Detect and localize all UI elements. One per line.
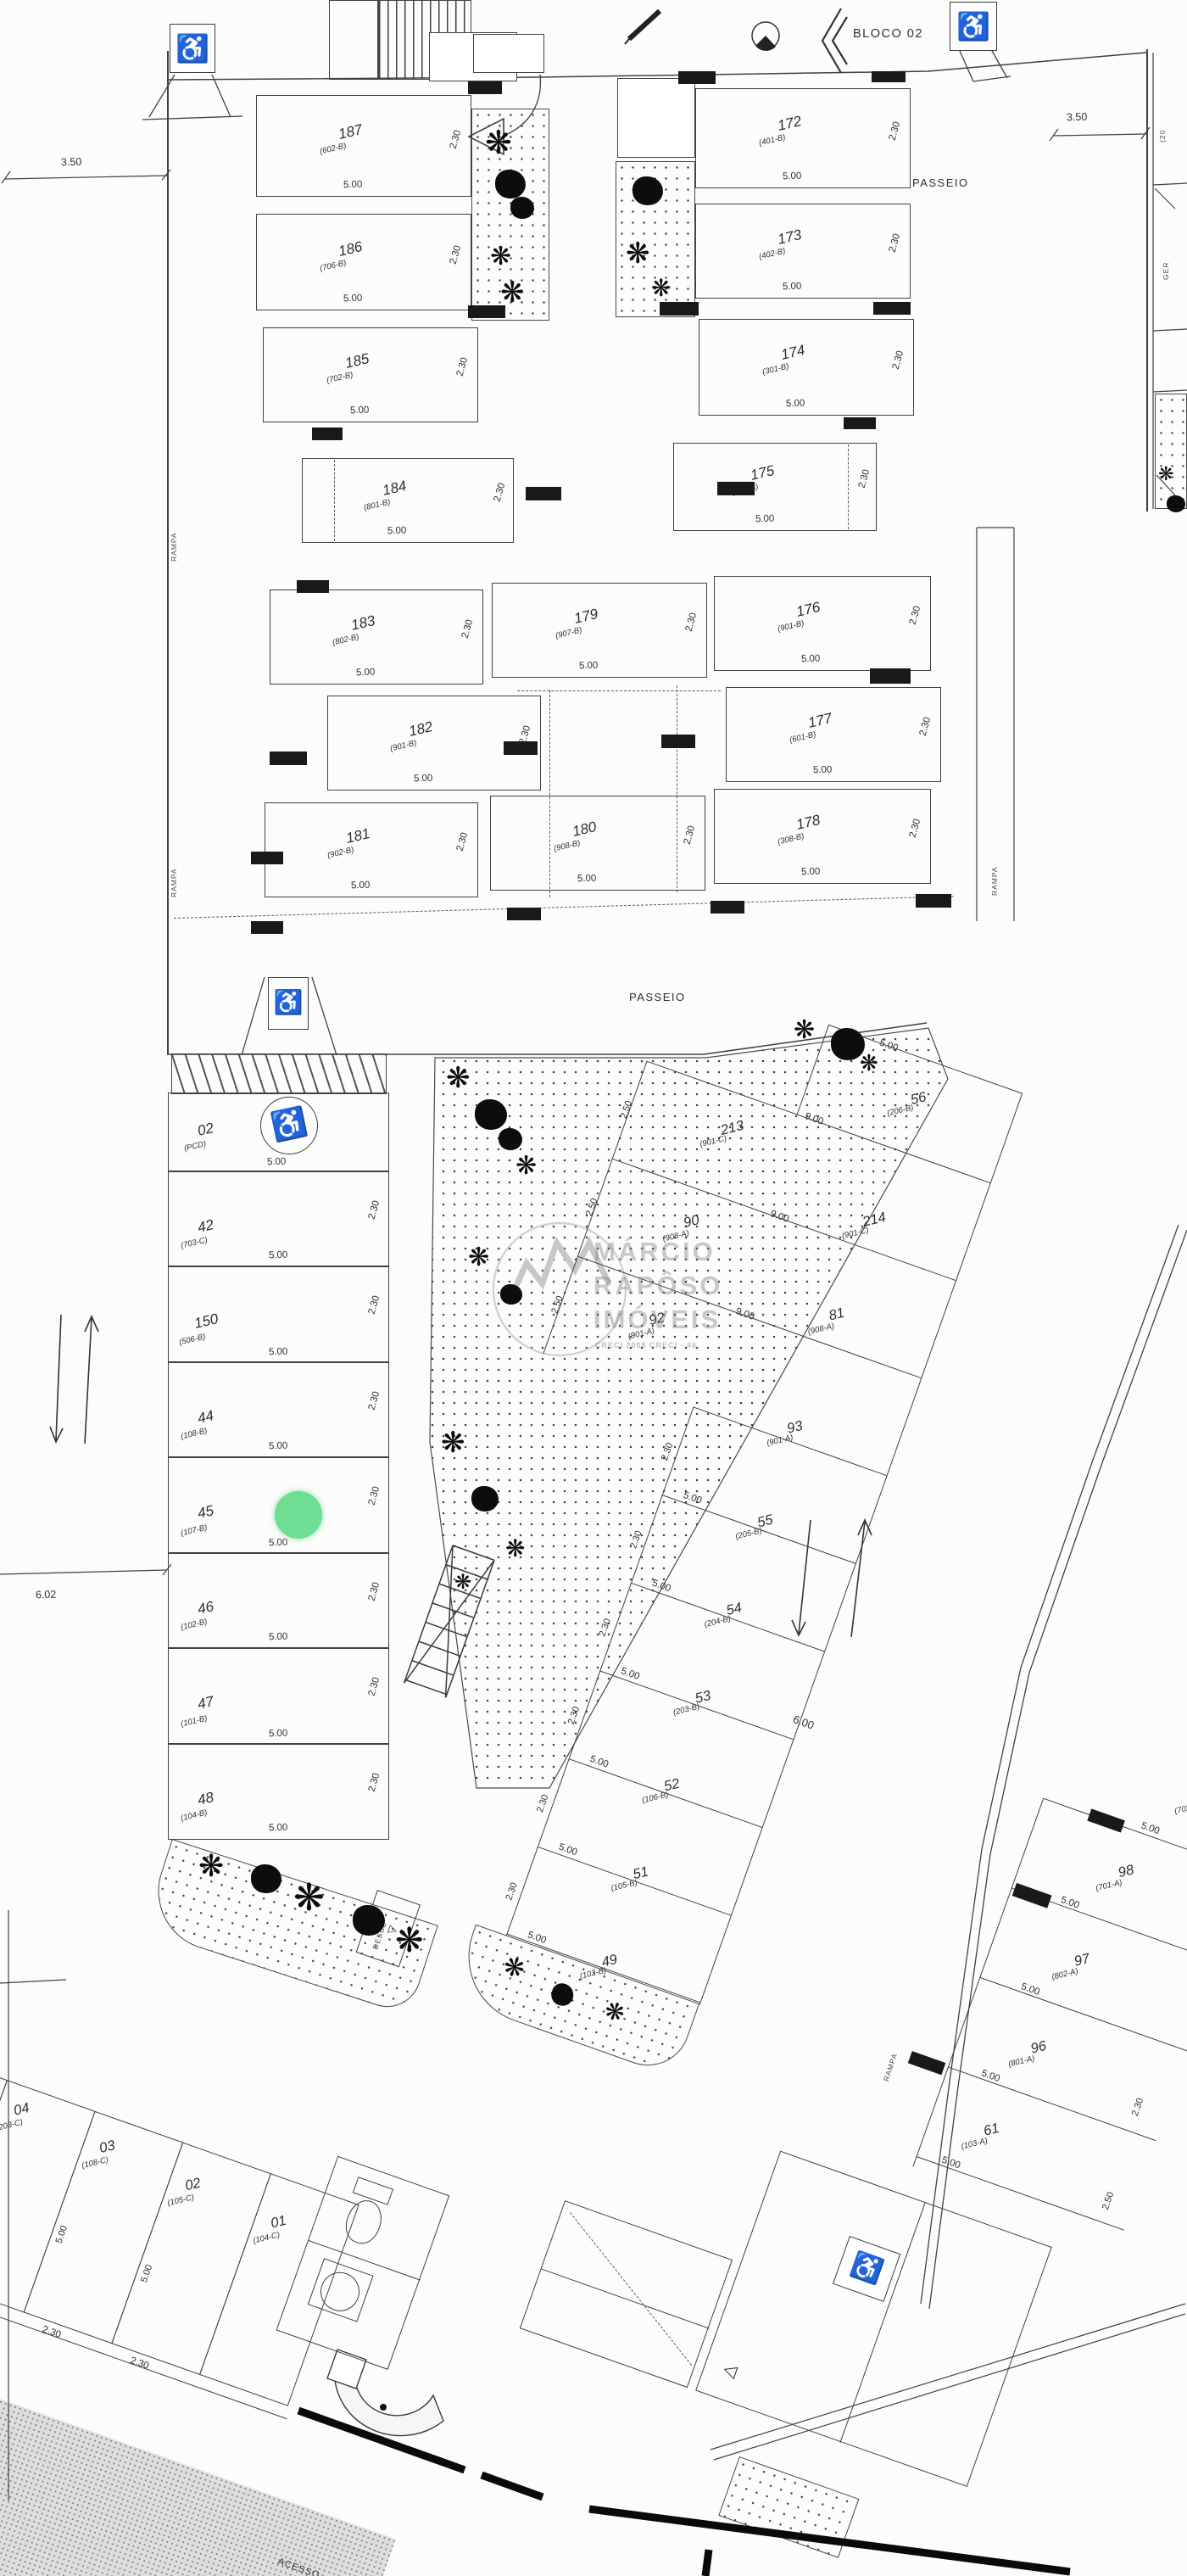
stall-code: (901-B) (389, 740, 417, 753)
dim-230: 2.30 (892, 349, 906, 371)
stall-code: (103-A) (961, 2137, 989, 2151)
stall-code: (301-B) (761, 363, 789, 377)
dim-500: 5.00 (813, 766, 833, 776)
stall-number: 184 (381, 478, 407, 498)
stall-185: 185 (702-B) 5.00 2.30 (263, 327, 478, 422)
dim-500: 5.00 (269, 1824, 288, 1834)
stall-number: 178 (794, 813, 821, 832)
stall-150: 150 (506-B) 5.00 2.30 (168, 1266, 389, 1363)
stall-code: (601-B) (789, 731, 816, 745)
stall-186: 186 (706-B) 5.00 2.30 (256, 214, 471, 310)
wheel-stop (717, 482, 755, 495)
dim-500: 5.00 (269, 1348, 288, 1358)
dim-500: 5.00 (387, 527, 407, 537)
stall-number: 47 (196, 1694, 215, 1712)
stall-number: 02 (196, 1120, 215, 1138)
plant-icon: ❋ (515, 1154, 537, 1179)
stall-pcd-02: 02 (PCD) 5.00 ♿ (168, 1092, 389, 1172)
dim-500: 5.00 (269, 1251, 288, 1261)
wheelchair-icon: ♿ (266, 1094, 313, 1154)
stall-code: (104-C) (253, 2231, 281, 2245)
site-plan: ♿ BLOCO 02 ♿ 3.50 3.50 RAMPA RAMPA RAMPA… (0, 0, 1187, 2576)
stall-code: (101-B) (180, 1715, 208, 1729)
dim-500: 5.00 (579, 662, 599, 672)
dim-230: 2.30 (368, 1772, 382, 1793)
dim-500: 5.00 (356, 668, 376, 679)
stair-shaft (329, 0, 378, 80)
dim-500: 5.00 (343, 181, 363, 191)
stall-code: (802-A) (1051, 1968, 1079, 1982)
stall-number: 81 (828, 1306, 846, 1323)
plant-icon: ❋ (446, 1064, 471, 1092)
dim-500: 5.00 (755, 515, 775, 525)
stall-number: 181 (344, 826, 371, 846)
stall-number: 176 (794, 600, 821, 619)
wheel-stop (504, 741, 538, 755)
stall-number: 44 (196, 1408, 215, 1426)
dim-230: 2.30 (909, 605, 923, 626)
dim-500: 5.00 (140, 2264, 155, 2284)
accessible-sign-mid: ♿ (268, 977, 309, 1030)
wheelchair-icon: ♿ (274, 989, 304, 1015)
passeio-label-right: PASSEIO (912, 176, 969, 189)
dim-230: 2.30 (461, 618, 476, 640)
stall-42: 42 (703-C) 5.00 2.30 (168, 1171, 389, 1267)
plant-icon: ❋ (1158, 465, 1173, 483)
stall-code: (901-C) (841, 1227, 870, 1241)
dim-230: 2.30 (660, 1442, 676, 1462)
plant-icon: ❋ (505, 1537, 525, 1561)
room-ger-label: GER (1162, 262, 1170, 280)
stall-code: (506-B) (178, 1333, 206, 1347)
shrub (1167, 495, 1185, 512)
dim-500: 5.00 (269, 1442, 288, 1452)
stall-code: (703-C) (180, 1236, 209, 1250)
dim-500: 5.00 (343, 294, 363, 305)
wheelchair-icon: ♿ (956, 11, 990, 42)
dim-230: 2.30 (598, 1618, 613, 1638)
shrub (251, 1864, 281, 1893)
stall-number: 180 (571, 819, 597, 839)
stall-number: 02 (184, 2176, 203, 2193)
wheel-stop (916, 894, 951, 908)
stall-code: (602-B) (319, 142, 347, 156)
plant-icon: ❋ (293, 1880, 325, 1917)
plant-icon: ❋ (485, 127, 512, 159)
stall-code: (401-B) (758, 134, 786, 148)
dim-500: 5.00 (55, 2225, 70, 2245)
dashed-line (334, 460, 335, 541)
wheelchair-icon: ♿ (176, 33, 209, 64)
plant-icon: ❋ (794, 1018, 815, 1043)
shrub (353, 1905, 385, 1936)
dim-230: 2.30 (368, 1390, 382, 1411)
dim-602: 6.02 (36, 1590, 57, 1601)
stall-code: (702- (1173, 1803, 1187, 1815)
dim-500: 5.00 (269, 1633, 288, 1643)
planter-box-b (617, 78, 695, 158)
wheel-stop (844, 417, 876, 429)
rampa-label-left-lower: RAMPA (170, 868, 178, 897)
stall-number: 179 (572, 606, 599, 626)
planter-box-a (473, 34, 544, 73)
stall-number: 186 (337, 239, 363, 259)
stall-number: 174 (779, 343, 805, 362)
stall-number: 03 (98, 2138, 117, 2155)
dim-230: 2.30 (449, 129, 464, 150)
watermark: MÁRCIO RAPÔSO IMÓVEIS CRECI 2008 CRECI -… (475, 1221, 780, 1383)
stall-code: (801-A) (1007, 2054, 1035, 2069)
plant-icon: ❋ (601, 1998, 627, 2026)
dim-500: 5.00 (414, 774, 433, 785)
stall-number: 183 (349, 613, 376, 633)
wheel-stop (661, 735, 695, 748)
plant-icon: ❋ (441, 1428, 465, 1457)
stall-code: (908-A) (807, 1322, 835, 1337)
dim-230: 2.30 (368, 1294, 382, 1316)
stall-187: 187 (602-B) 5.00 2.30 (256, 95, 471, 197)
stall-179: 179 (907-B) 5.00 2.30 (492, 583, 707, 678)
stall-code: (907-B) (554, 627, 582, 640)
stall-code: (802-B) (332, 634, 359, 647)
dim-350-left: 3.50 (61, 157, 82, 168)
stall-176: 176 (901-B) 5.00 2.30 (714, 576, 931, 671)
stall-code: (701-A) (1095, 1879, 1123, 1893)
accessible-sign-top-right: ♿ (950, 2, 997, 51)
dim-230: 2.30 (456, 356, 471, 377)
dim-350-right: 3.50 (1067, 112, 1088, 123)
stall-code: (902-B) (326, 847, 354, 860)
stall-173: 173 (402-B) 5.00 2.30 (695, 204, 911, 299)
dim-230: 2.30 (449, 244, 464, 265)
stall-number: 187 (337, 122, 363, 142)
highlight-marker[interactable] (275, 1491, 322, 1539)
stall-number: 173 (776, 227, 802, 247)
stall-number: 04 (13, 2101, 31, 2118)
stall-code: (901-B) (777, 620, 805, 634)
stall-code: (402-B) (758, 248, 786, 261)
dim-500: 5.00 (577, 874, 597, 885)
dim-500: 5.00 (801, 868, 821, 878)
stall-code: (901-C) (699, 1135, 728, 1149)
dim-230: 2.30 (567, 1706, 582, 1726)
stall-code: (203-C) (0, 2119, 24, 2133)
stall-code: (706-B) (319, 260, 347, 273)
wheel-stop (312, 427, 343, 440)
dim-500: 5.00 (786, 400, 805, 410)
stall-number: 172 (776, 114, 802, 133)
stall-175: 175 (502-B) 5.00 2.30 (673, 443, 877, 531)
room-partial-label: (20 (1158, 130, 1167, 142)
stall-172: 172 (401-B) 5.00 2.30 (695, 88, 911, 188)
watermark-line2: RAPÔSO (593, 1272, 722, 1299)
wheel-stop (870, 668, 911, 684)
stall-177: 177 (601-B) 5.00 2.30 (726, 687, 941, 782)
dim-230: 2.30 (456, 831, 471, 852)
door-swing-icon: ◁ (721, 2358, 740, 2383)
watermark-subtext: CRECI 2008 CRECI - 46 (595, 1342, 697, 1349)
dim-500: 5.00 (269, 1539, 288, 1549)
stall-number: 48 (196, 1790, 215, 1808)
plant-icon: ❋ (860, 1052, 878, 1074)
stall-number: 45 (196, 1503, 215, 1521)
stall-number: 42 (196, 1217, 215, 1235)
dim-230: 2.30 (536, 1793, 551, 1813)
dim-230: 2.30 (368, 1199, 382, 1221)
stall-code: (108-C) (81, 2156, 110, 2171)
stall-code: (105-C) (167, 2193, 196, 2208)
wheel-stop (660, 302, 699, 316)
dim-500: 5.00 (940, 2156, 961, 2171)
pcd-wheelchair-badge: ♿ (260, 1097, 318, 1154)
stall-46: 46 (102-B) 5.00 2.30 (168, 1552, 389, 1649)
dim-500: 5.00 (783, 172, 802, 182)
dim-230: 2.30 (368, 1485, 382, 1506)
dim-230: 2.30 (493, 482, 508, 503)
stall-code: (PCD) (183, 1140, 207, 1153)
stall-174: 174 (301-B) 5.00 2.30 (699, 319, 914, 416)
stall-number: 150 (192, 1311, 219, 1331)
dim-230: 2.30 (629, 1529, 644, 1550)
wheel-stop (526, 487, 561, 500)
toilet-bowl (341, 2195, 387, 2248)
toilet (353, 2176, 393, 2205)
dim-230: 2.30 (919, 716, 933, 737)
dim-500: 5.00 (783, 282, 802, 293)
shrub (499, 1128, 522, 1150)
plant-icon: ❋ (651, 277, 671, 300)
stall-47: 47 (101-B) 5.00 2.30 (168, 1647, 389, 1745)
wheel-stop (711, 901, 744, 914)
dim-230: 2.30 (1131, 2097, 1146, 2117)
dim-500: 5.00 (801, 655, 821, 665)
shrub (471, 1486, 499, 1512)
stall-code: (206-B) (886, 1104, 914, 1118)
shrub (510, 197, 534, 219)
dim-230: 2.30 (685, 612, 699, 633)
dim-230: 2.30 (504, 1881, 520, 1902)
dim-230: 2.30 (889, 232, 903, 254)
rampa-label-right: RAMPA (990, 866, 999, 896)
wheel-stop (297, 580, 329, 593)
stall-code: (801-B) (363, 499, 391, 512)
dim-500: 5.00 (351, 881, 371, 891)
wheel-stop (873, 302, 911, 315)
plant-icon: ❋ (490, 244, 511, 270)
accessible-sign-top-left: ♿ (170, 24, 215, 73)
stall-code: (308-B) (777, 833, 805, 847)
plant-icon: ❋ (395, 1924, 424, 1958)
wheel-stop (251, 921, 283, 934)
dim-500: 5.00 (350, 406, 370, 416)
dim-230: 2.30 (368, 1581, 382, 1602)
wheelchair-icon: ♿ (847, 2250, 886, 2288)
watermark-line1: MÁRCIO (593, 1238, 716, 1265)
left-wall (167, 51, 169, 1054)
stall-number: 175 (749, 463, 775, 483)
dim-230: 2.30 (858, 468, 872, 489)
stall-number: 182 (407, 719, 433, 739)
plant-icon: ❋ (499, 1953, 528, 1984)
plant-icon: ❋ (198, 1851, 224, 1881)
shrub (495, 170, 526, 198)
wheel-stop (270, 752, 307, 765)
stall-code: (702-B) (326, 372, 354, 385)
stall-code: (908-B) (553, 840, 581, 853)
stall-44: 44 (108-B) 5.00 2.30 (168, 1361, 389, 1458)
plant-icon: ❋ (626, 239, 650, 268)
dashed-line (517, 690, 721, 691)
dim-250: 2.50 (1101, 2191, 1117, 2211)
stair-line (541, 2269, 709, 2329)
dim-500: 5.00 (267, 1158, 287, 1168)
plant-icon: ❋ (500, 278, 525, 307)
watermark-line3: IMÓVEIS (593, 1306, 721, 1333)
dashed-line (848, 444, 849, 529)
dim-230: 2.30 (889, 120, 903, 142)
lobby: ◁ ◁ (175, 2171, 1024, 2576)
wheel-stop (468, 81, 502, 94)
stall-code: (107-B) (180, 1524, 208, 1538)
stall-code: (104-B) (180, 1809, 208, 1823)
dim-230: 2.30 (368, 1676, 382, 1697)
wheel-stop (507, 908, 541, 920)
rampa-label-left-upper: RAMPA (170, 532, 178, 562)
shrub (549, 1981, 577, 2009)
stall-number: 46 (196, 1599, 215, 1617)
stall-181: 181 (902-B) 5.00 2.30 (265, 802, 478, 897)
wheel-stop (872, 71, 906, 82)
shrub (475, 1099, 507, 1130)
bloco-02-label: BLOCO 02 (853, 27, 923, 41)
stall-code: (108-B) (180, 1428, 208, 1441)
dim-500: 5.00 (269, 1729, 288, 1740)
wheel-stop (678, 71, 716, 84)
dim-230: 2.30 (683, 824, 698, 846)
shrub (633, 176, 663, 205)
stall-number: 185 (343, 351, 370, 371)
stall-48: 48 (104-B) 5.00 2.30 (168, 1743, 389, 1840)
wc-room (276, 2156, 450, 2370)
right-wall (1146, 49, 1148, 511)
plant-icon: ❋ (454, 1573, 471, 1593)
stall-code: (102-B) (180, 1618, 208, 1632)
dim-230: 2.30 (909, 818, 923, 839)
stall-183: 183 (802-B) 5.00 2.30 (270, 590, 483, 685)
wheel-stop (251, 852, 283, 864)
stall-178: 178 (308-B) 5.00 2.30 (714, 789, 931, 884)
stall-number: 177 (806, 711, 833, 730)
stall-180: 180 (908-B) 5.00 2.30 (490, 796, 705, 891)
